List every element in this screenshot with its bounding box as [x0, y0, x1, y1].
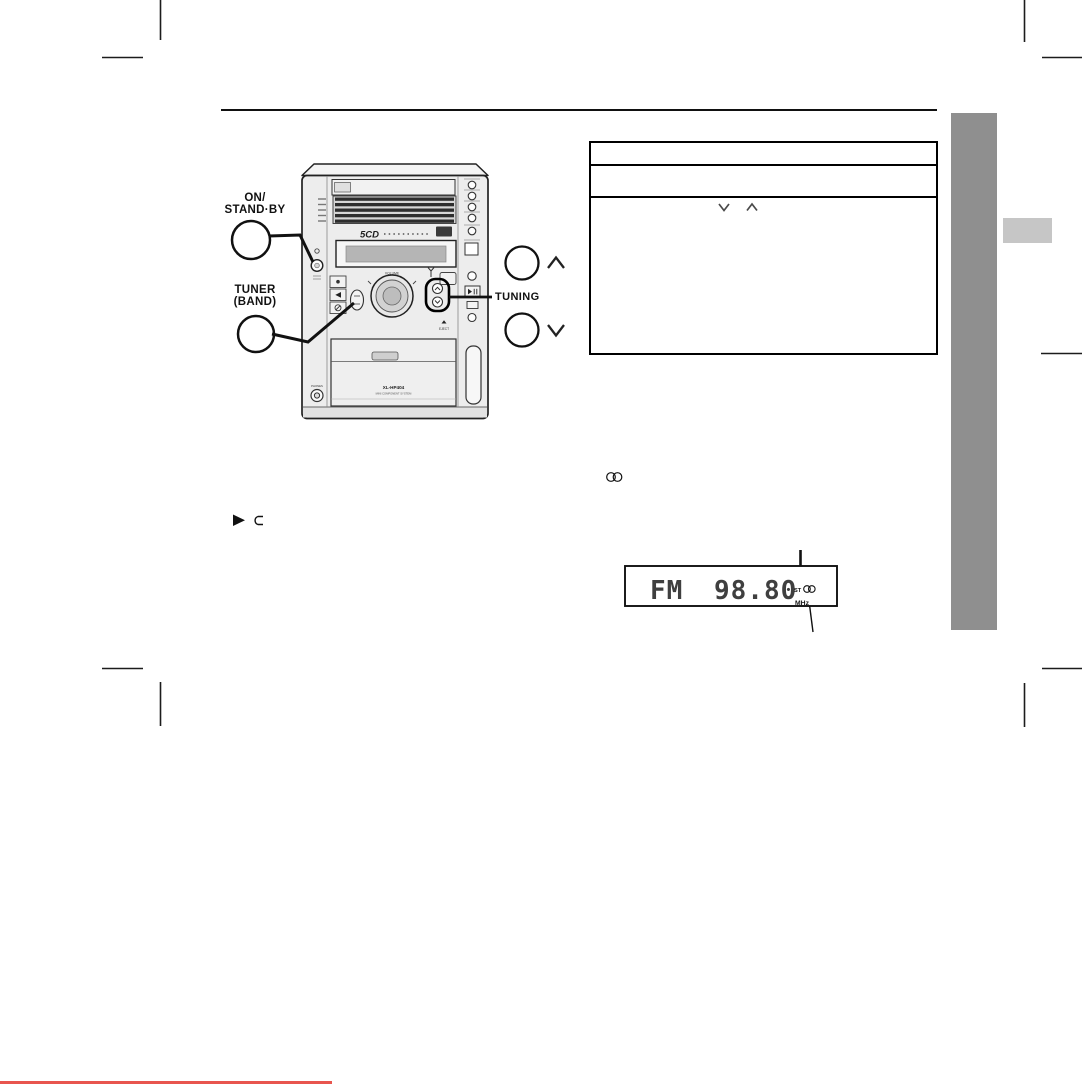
cassette-door: XL-HP404 MINI COMPONENT SYSTEM [331, 339, 456, 406]
power-step-circle [232, 221, 270, 259]
cd-badge [436, 227, 452, 237]
stereo-unit-illustration: 5CD [302, 164, 488, 419]
front-grille [333, 196, 456, 224]
stereo-broadcast-icon [607, 473, 622, 482]
display-frequency-unit: MHz [795, 600, 810, 607]
chevron-up-icon [548, 258, 564, 269]
play-icon [233, 515, 245, 527]
play-pause-button [465, 286, 480, 297]
tuning-up-button [433, 284, 443, 294]
unit-top-face [302, 164, 488, 176]
eject-label: EJECT [439, 327, 449, 331]
tuning-up-step-circle [506, 247, 539, 280]
chevron-down-icon [719, 204, 729, 211]
loop-icon [255, 517, 263, 525]
tuning-down-button [433, 297, 443, 307]
page-artwork: 5CD [0, 0, 1082, 1084]
manual-page: ON/ STAND·BY TUNER (BAND) TUNING [0, 0, 1082, 1084]
display-band: FM [650, 576, 683, 606]
front-display-window [346, 246, 446, 262]
band-button [351, 290, 364, 310]
model-subtitle: MINI COMPONENT SYSTEM [376, 392, 412, 396]
tuner-step-circle [238, 316, 274, 352]
tuner-display-figure: FM 98.80 MHz ST [625, 550, 837, 632]
door-handle-slot [372, 352, 398, 360]
tuning-down-step-circle [506, 314, 539, 347]
display-stereo-text: ST [794, 588, 802, 594]
transport-buttons [330, 276, 346, 314]
chevron-up-icon [747, 204, 757, 211]
side-handle [466, 346, 481, 404]
cd-changer-logo: 5CD [360, 230, 379, 241]
unit-base [303, 407, 487, 418]
remote-sensor [465, 243, 478, 255]
display-frequency: 98.80 [714, 576, 797, 606]
phones-label: PHONES [311, 384, 323, 388]
chevron-down-icon [548, 325, 564, 336]
model-name: XL-HP404 [383, 385, 405, 390]
phones-jack: PHONES [311, 384, 323, 402]
infobox-chevrons [719, 204, 757, 211]
power-callout [232, 221, 313, 262]
stop-button [467, 302, 478, 309]
